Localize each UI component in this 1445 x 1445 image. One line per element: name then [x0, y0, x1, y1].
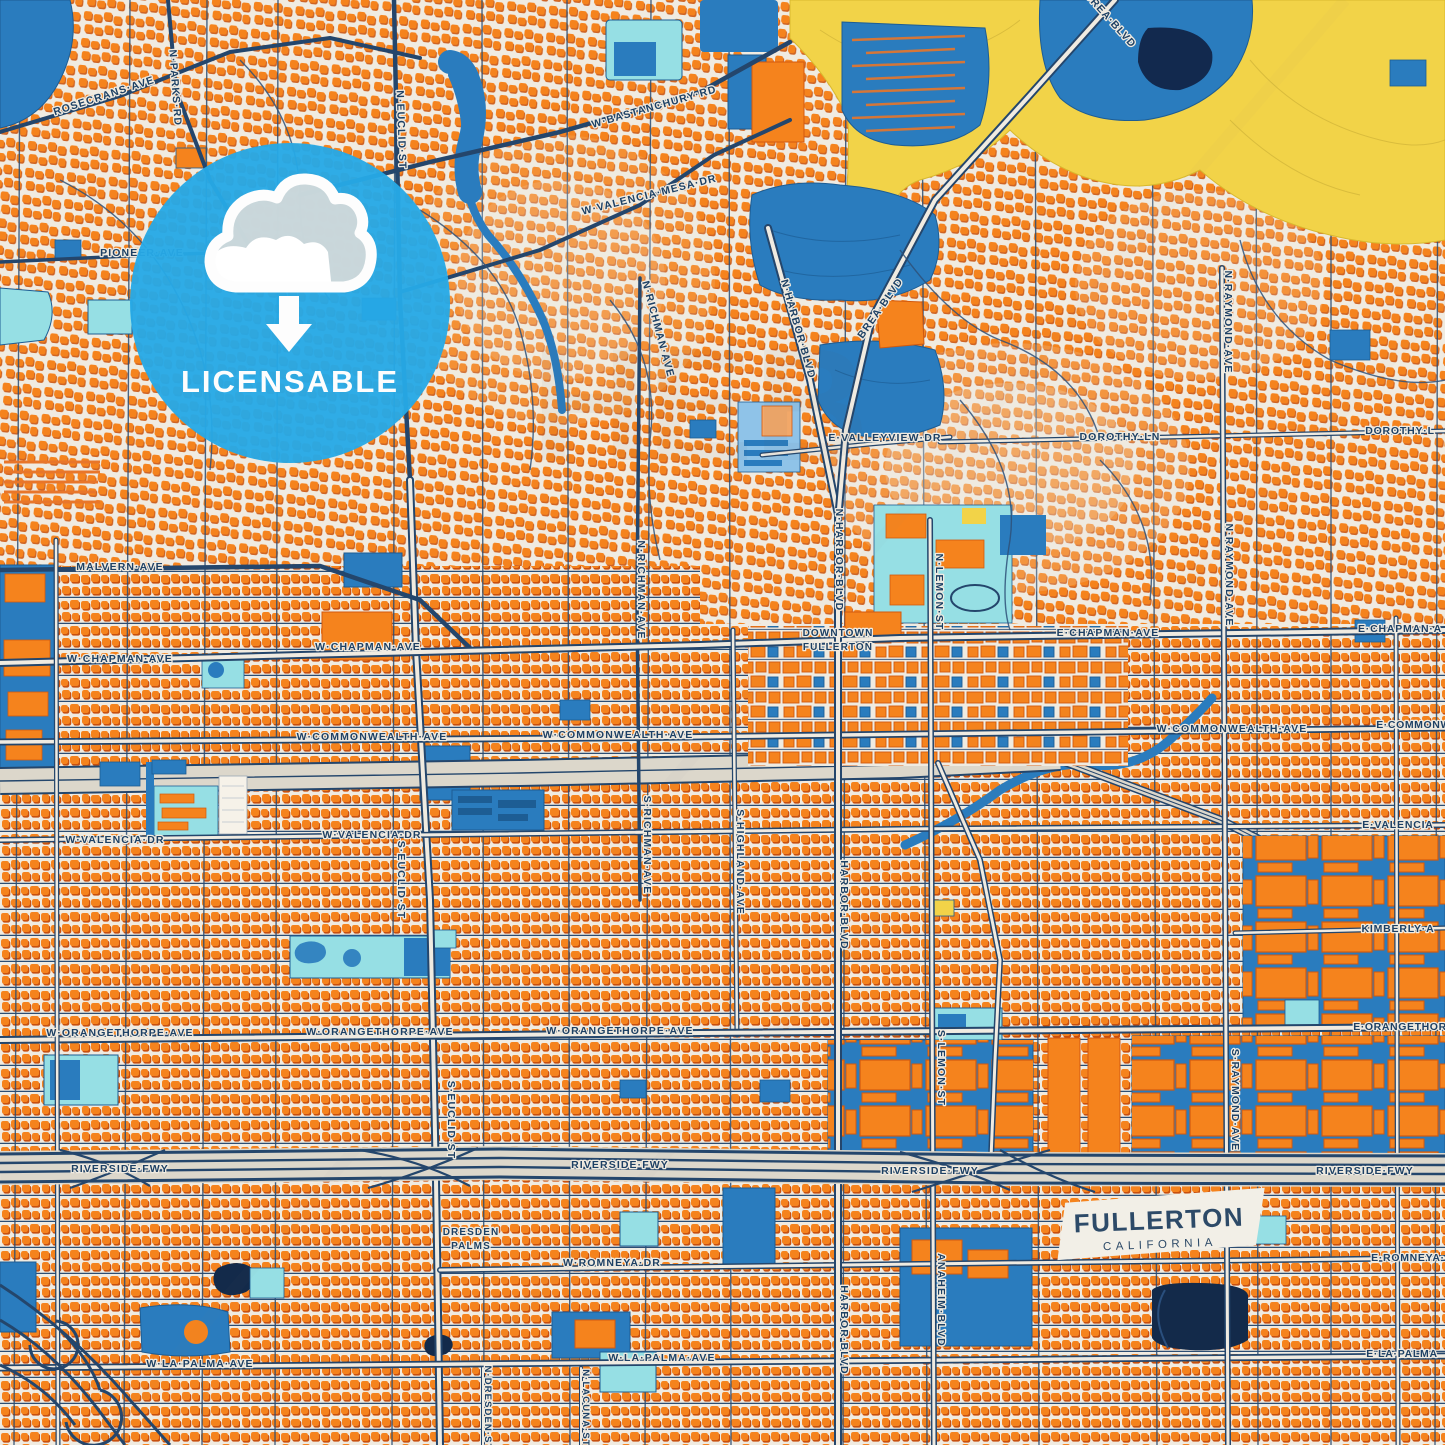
svg-text:FULLERTON: FULLERTON [803, 642, 873, 653]
svg-text:W·ORANGETHORPE·AVE: W·ORANGETHORPE·AVE [546, 1025, 693, 1037]
svg-text:KIMBERLY·A: KIMBERLY·A [1362, 923, 1435, 935]
svg-text:RIVERSIDE·FWY: RIVERSIDE·FWY [1316, 1165, 1414, 1177]
svg-text:S·HIGHLAND·AVE: S·HIGHLAND·AVE [734, 809, 746, 915]
svg-text:N·RAYMOND·AVE: N·RAYMOND·AVE [1222, 271, 1234, 374]
svg-text:N·RICHMAN·AVE: N·RICHMAN·AVE [635, 540, 647, 639]
svg-text:DOROTHY·L: DOROTHY·L [1365, 425, 1435, 437]
svg-text:E·VALENCIA: E·VALENCIA [1362, 819, 1433, 831]
svg-text:N·DRESDEN·ST: N·DRESDEN·ST [482, 1366, 493, 1445]
svg-text:W·COMMONWEALTH·AVE: W·COMMONWEALTH·AVE [297, 731, 448, 743]
svg-text:MALVERN·AVE: MALVERN·AVE [76, 561, 164, 573]
svg-text:W·LA·PALMA·AVE: W·LA·PALMA·AVE [608, 1352, 715, 1364]
svg-text:LICENSABLE: LICENSABLE [181, 364, 399, 399]
svg-text:W·CHAPMAN·AVE: W·CHAPMAN·AVE [315, 641, 421, 653]
svg-text:ANAHEIM·BLVD: ANAHEIM·BLVD [935, 1253, 947, 1347]
svg-text:HEB: HEB [531, 315, 869, 494]
svg-text:W·COMMONWEALTH·AVE: W·COMMONWEALTH·AVE [1157, 723, 1308, 735]
svg-text:RIVERSIDE·FWY: RIVERSIDE·FWY [71, 1163, 169, 1175]
svg-text:HARBOR·BLVD: HARBOR·BLVD [838, 860, 850, 949]
svg-text:E·COMMONWEAL: E·COMMONWEAL [1376, 719, 1445, 731]
svg-text:E·ORANGETHOR: E·ORANGETHOR [1353, 1021, 1445, 1033]
svg-text:W·CHAPMAN·AVE: W·CHAPMAN·AVE [67, 653, 173, 665]
svg-text:E·ROMNEYA·: E·ROMNEYA· [1371, 1252, 1445, 1264]
svg-text:DOROTHY·LN: DOROTHY·LN [1080, 431, 1161, 443]
svg-text:S·EUCLID·ST: S·EUCLID·ST [445, 1081, 457, 1160]
svg-text:W·VALENCIA·DR: W·VALENCIA·DR [65, 834, 164, 846]
svg-text:E·CHAPMAN·A: E·CHAPMAN·A [1358, 623, 1442, 635]
svg-text:N·LACUNA·ST: N·LACUNA·ST [580, 1369, 591, 1445]
svg-text:S·LEMON·ST: S·LEMON·ST [935, 1030, 947, 1106]
svg-text:W·COMMONWEALTH·AVE: W·COMMONWEALTH·AVE [543, 729, 694, 741]
svg-text:E·LA·PALMA: E·LA·PALMA [1366, 1348, 1438, 1360]
svg-text:S·RAYMOND·AVE: S·RAYMOND·AVE [1229, 1049, 1241, 1151]
svg-text:S·EUCLID·ST: S·EUCLID·ST [395, 841, 407, 920]
svg-text:W·ORANGETHORPE·AVE: W·ORANGETHORPE·AVE [306, 1026, 453, 1038]
svg-text:RIVERSIDE·FWY: RIVERSIDE·FWY [881, 1165, 979, 1177]
svg-text:DRESDEN: DRESDEN [443, 1227, 500, 1238]
svg-text:HARBOR·BLVD: HARBOR·BLVD [838, 1285, 850, 1374]
svg-text:PALMS: PALMS [451, 1241, 491, 1252]
svg-text:W·VALENCIA·DR: W·VALENCIA·DR [322, 829, 421, 841]
svg-text:DOWNTOWN: DOWNTOWN [803, 628, 874, 639]
svg-text:W·ORANGETHORPE·AVE: W·ORANGETHORPE·AVE [46, 1027, 193, 1039]
svg-text:N·LEMON·ST: N·LEMON·ST [933, 554, 945, 631]
